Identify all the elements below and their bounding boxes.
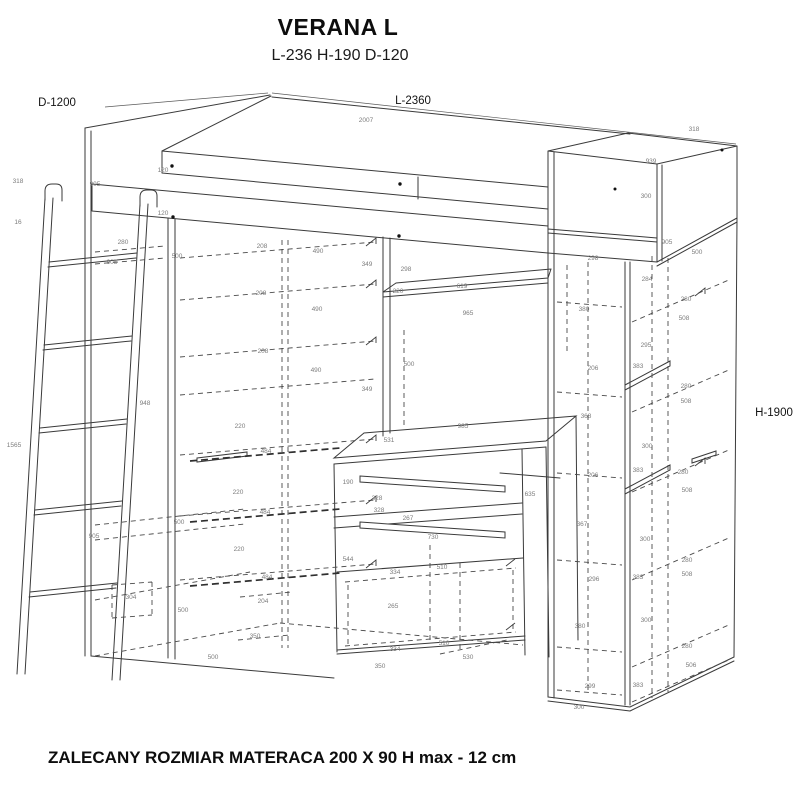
dimension-label: 905 bbox=[662, 239, 673, 246]
dimension-label: 267 bbox=[403, 515, 414, 522]
dimension-label: 280 bbox=[678, 469, 689, 476]
dimension-label: 500 bbox=[172, 253, 183, 260]
dimension-label: 500 bbox=[178, 607, 189, 614]
dimension-label: 510 bbox=[437, 564, 448, 571]
dimension-label: 280 bbox=[118, 239, 129, 246]
main-dimension-label: L-2360 bbox=[395, 95, 431, 107]
dimension-label: 318 bbox=[689, 126, 700, 133]
dimension-label: 350 bbox=[375, 663, 386, 670]
dimension-label: 490 bbox=[311, 367, 322, 374]
dimension-label: 1565 bbox=[7, 442, 22, 449]
dimension-label: 284 bbox=[642, 276, 653, 283]
dimension-label: 730 bbox=[428, 534, 439, 541]
dimension-label: 296 bbox=[589, 576, 600, 583]
dimension-label: 220 bbox=[393, 288, 404, 295]
dimension-label: 508 bbox=[682, 487, 693, 494]
dimension-label: 280 bbox=[682, 643, 693, 650]
dimension-label: 506 bbox=[686, 662, 697, 669]
dimension-label: 905 bbox=[90, 181, 101, 188]
dimension-label: 304 bbox=[126, 594, 137, 601]
dimension-label: 349 bbox=[362, 386, 373, 393]
dimension-label: 490 bbox=[312, 306, 323, 313]
dimension-label: 510 bbox=[439, 640, 450, 647]
dimension-label: 299 bbox=[585, 683, 596, 690]
ladder-lines bbox=[17, 184, 157, 680]
dimension-label: 905 bbox=[89, 533, 100, 540]
dimension-label: 280 bbox=[682, 557, 693, 564]
dimension-label: 544 bbox=[343, 556, 354, 563]
dimension-label: 220 bbox=[233, 489, 244, 496]
dimension-label: 500 bbox=[208, 654, 219, 661]
dimension-label: 367 bbox=[577, 521, 588, 528]
dimension-label: 328 bbox=[372, 495, 383, 502]
main-dimension-labels: D-1200L-2360H-1900 bbox=[38, 95, 793, 419]
part-dimension-labels: 2007318939300120120905318169055002982843… bbox=[7, 117, 703, 711]
dimension-label: 220 bbox=[234, 546, 245, 553]
dimension-label: 120 bbox=[158, 167, 169, 174]
dimension-label: 298 bbox=[588, 255, 599, 262]
dimension-label: 280 bbox=[681, 383, 692, 390]
main-dimension-label: H-1900 bbox=[755, 407, 793, 419]
dimension-label: 508 bbox=[682, 571, 693, 578]
dimension-label: 905 bbox=[107, 259, 118, 266]
dimension-label: 380 bbox=[579, 306, 590, 313]
dimension-label: 500 bbox=[174, 519, 185, 526]
dimension-label: 484 bbox=[262, 574, 273, 581]
dimension-label: 383 bbox=[633, 574, 644, 581]
dimension-label: 300 bbox=[641, 193, 652, 200]
dimension-label: 500 bbox=[692, 249, 703, 256]
dimension-label: 484 bbox=[261, 448, 272, 455]
dimension-label: 350 bbox=[250, 633, 261, 640]
dimension-label: 965 bbox=[463, 310, 474, 317]
dimension-label: 265 bbox=[388, 603, 399, 610]
dimension-label: 120 bbox=[158, 210, 169, 217]
dimension-label: 220 bbox=[235, 423, 246, 430]
dimension-label: 531 bbox=[384, 437, 395, 444]
dimension-label: 2007 bbox=[359, 117, 374, 124]
dimension-label: 300 bbox=[640, 536, 651, 543]
wardrobe-heavy-hidden-lines bbox=[190, 448, 340, 586]
dimension-label: 500 bbox=[404, 361, 415, 368]
dimension-label: 295 bbox=[641, 342, 652, 349]
dimension-label: 383 bbox=[633, 467, 644, 474]
dimension-label: 948 bbox=[140, 400, 151, 407]
dimension-label: 206 bbox=[588, 472, 599, 479]
diagram-page: VERANA L L-236 H-190 D-120 bbox=[0, 0, 800, 800]
dimension-label: 383 bbox=[633, 363, 644, 370]
dimension-label: 16 bbox=[14, 219, 22, 226]
dimension-label: 484 bbox=[260, 509, 271, 516]
dimension-label: 300 bbox=[641, 617, 652, 624]
dimension-label: 490 bbox=[313, 248, 324, 255]
dimension-label: 206 bbox=[588, 365, 599, 372]
desk-hidden-lines bbox=[345, 545, 516, 654]
dimension-label: 300 bbox=[642, 443, 653, 450]
dimension-label: 334 bbox=[390, 569, 401, 576]
mattress-note: ZALECANY ROZMIAR MATERACA 200 X 90 H max… bbox=[48, 748, 516, 768]
dimension-label: 380 bbox=[575, 623, 586, 630]
dimension-label: 985 bbox=[458, 423, 469, 430]
dimension-label: 208 bbox=[256, 290, 267, 297]
dimension-label: 300 bbox=[574, 704, 585, 711]
dimension-label: 939 bbox=[646, 158, 657, 165]
dimension-label: 619 bbox=[457, 283, 468, 290]
dimension-label: 383 bbox=[633, 682, 644, 689]
dimension-label: 190 bbox=[343, 479, 354, 486]
dimension-label: 208 bbox=[257, 243, 268, 250]
dimension-label: 334 bbox=[390, 646, 401, 653]
dimension-label: 368 bbox=[581, 413, 592, 420]
dimension-label: 328 bbox=[374, 507, 385, 514]
dimension-label: 349 bbox=[362, 261, 373, 268]
furniture-diagram: D-1200L-2360H-1900 200731893930012012090… bbox=[0, 0, 800, 800]
dimension-label: 208 bbox=[258, 348, 269, 355]
desk-lines bbox=[334, 416, 578, 657]
dimension-label: 204 bbox=[258, 598, 269, 605]
dimension-label: 318 bbox=[13, 178, 24, 185]
dimension-label: 280 bbox=[681, 296, 692, 303]
dimension-label: 530 bbox=[463, 654, 474, 661]
dimension-label: 508 bbox=[679, 315, 690, 322]
dimension-label: 298 bbox=[401, 266, 412, 273]
callout-hooks bbox=[366, 238, 705, 630]
dimension-label: 635 bbox=[525, 491, 536, 498]
dimension-label: 508 bbox=[681, 398, 692, 405]
wardrobe-lines bbox=[91, 218, 551, 678]
main-dimension-label: D-1200 bbox=[38, 97, 76, 109]
